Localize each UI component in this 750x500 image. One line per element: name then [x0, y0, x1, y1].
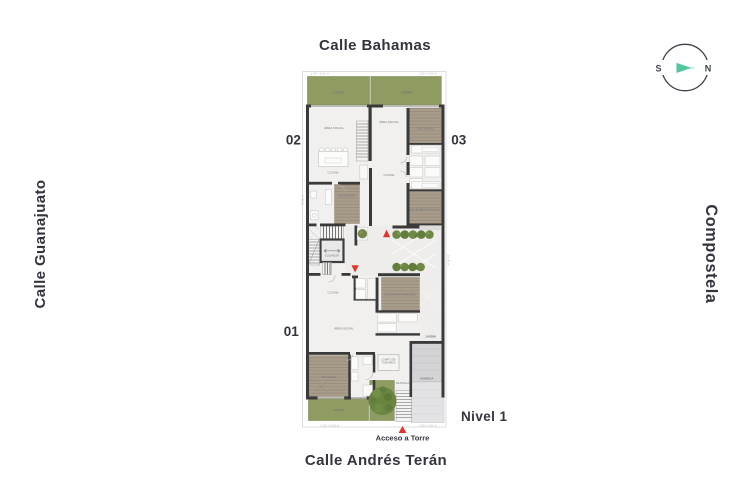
svg-text:ÁREA SOCIAL: ÁREA SOCIAL — [379, 120, 399, 124]
svg-text:DE PASILLO: DE PASILLO — [396, 382, 410, 385]
svg-text:JARDÍN: JARDÍN — [400, 90, 411, 95]
svg-text:JARDÍN: JARDÍN — [332, 90, 343, 95]
svg-text:COCINA: COCINA — [328, 291, 339, 295]
svg-text:25.00 m: 25.00 m — [301, 194, 305, 205]
svg-text:ELEVADOR: ELEVADOR — [325, 254, 339, 258]
svg-text:1.50 × 5.00 m: 1.50 × 5.00 m — [311, 72, 330, 76]
svg-text:1.50 × 5.00 m: 1.50 × 5.00 m — [321, 424, 340, 428]
svg-text:TODA MESA: TODA MESA — [382, 362, 396, 365]
svg-text:Calle Guanajuato: Calle Guanajuato — [32, 180, 49, 309]
svg-text:Calle Andrés Terán: Calle Andrés Terán — [305, 452, 447, 469]
svg-text:Acceso a Torre: Acceso a Torre — [376, 434, 430, 443]
svg-text:RECÁMARA PRINCIPAL: RECÁMARA PRINCIPAL — [384, 293, 415, 297]
svg-text:RECÁMARA PRINCIPAL: RECÁMARA PRINCIPAL — [409, 208, 440, 212]
svg-text:ÁREA SOCIAL: ÁREA SOCIAL — [334, 327, 354, 331]
svg-text:Calle Bahamas: Calle Bahamas — [319, 37, 431, 54]
svg-text:COCINA: COCINA — [384, 173, 395, 177]
svg-text:JARDÍN: JARDÍN — [333, 407, 344, 412]
svg-text:ÁREA SOCIAL: ÁREA SOCIAL — [324, 126, 344, 130]
svg-text:Nivel 1: Nivel 1 — [461, 409, 507, 424]
svg-text:03: 03 — [451, 132, 467, 147]
svg-text:BODEGA: BODEGA — [420, 377, 434, 381]
svg-text:1.50 × 5.00 m: 1.50 × 5.00 m — [419, 424, 438, 428]
svg-text:02: 02 — [286, 132, 301, 147]
svg-text:Compostela: Compostela — [702, 204, 720, 304]
svg-text:N: N — [705, 63, 712, 73]
svg-text:1.50 × 5.00 m: 1.50 × 5.00 m — [419, 72, 438, 76]
svg-text:25.00 m: 25.00 m — [447, 255, 451, 266]
svg-text:01: 01 — [284, 324, 300, 339]
svg-text:JARDÍN: JARDÍN — [425, 334, 435, 339]
svg-text:RECÁMARA: RECÁMARA — [339, 194, 355, 198]
svg-text:S: S — [655, 63, 661, 73]
svg-text:RECÁMARA: RECÁMARA — [418, 127, 434, 131]
svg-text:COCINA: COCINA — [328, 171, 339, 175]
svg-text:RECÁMARA: RECÁMARA — [321, 375, 337, 379]
